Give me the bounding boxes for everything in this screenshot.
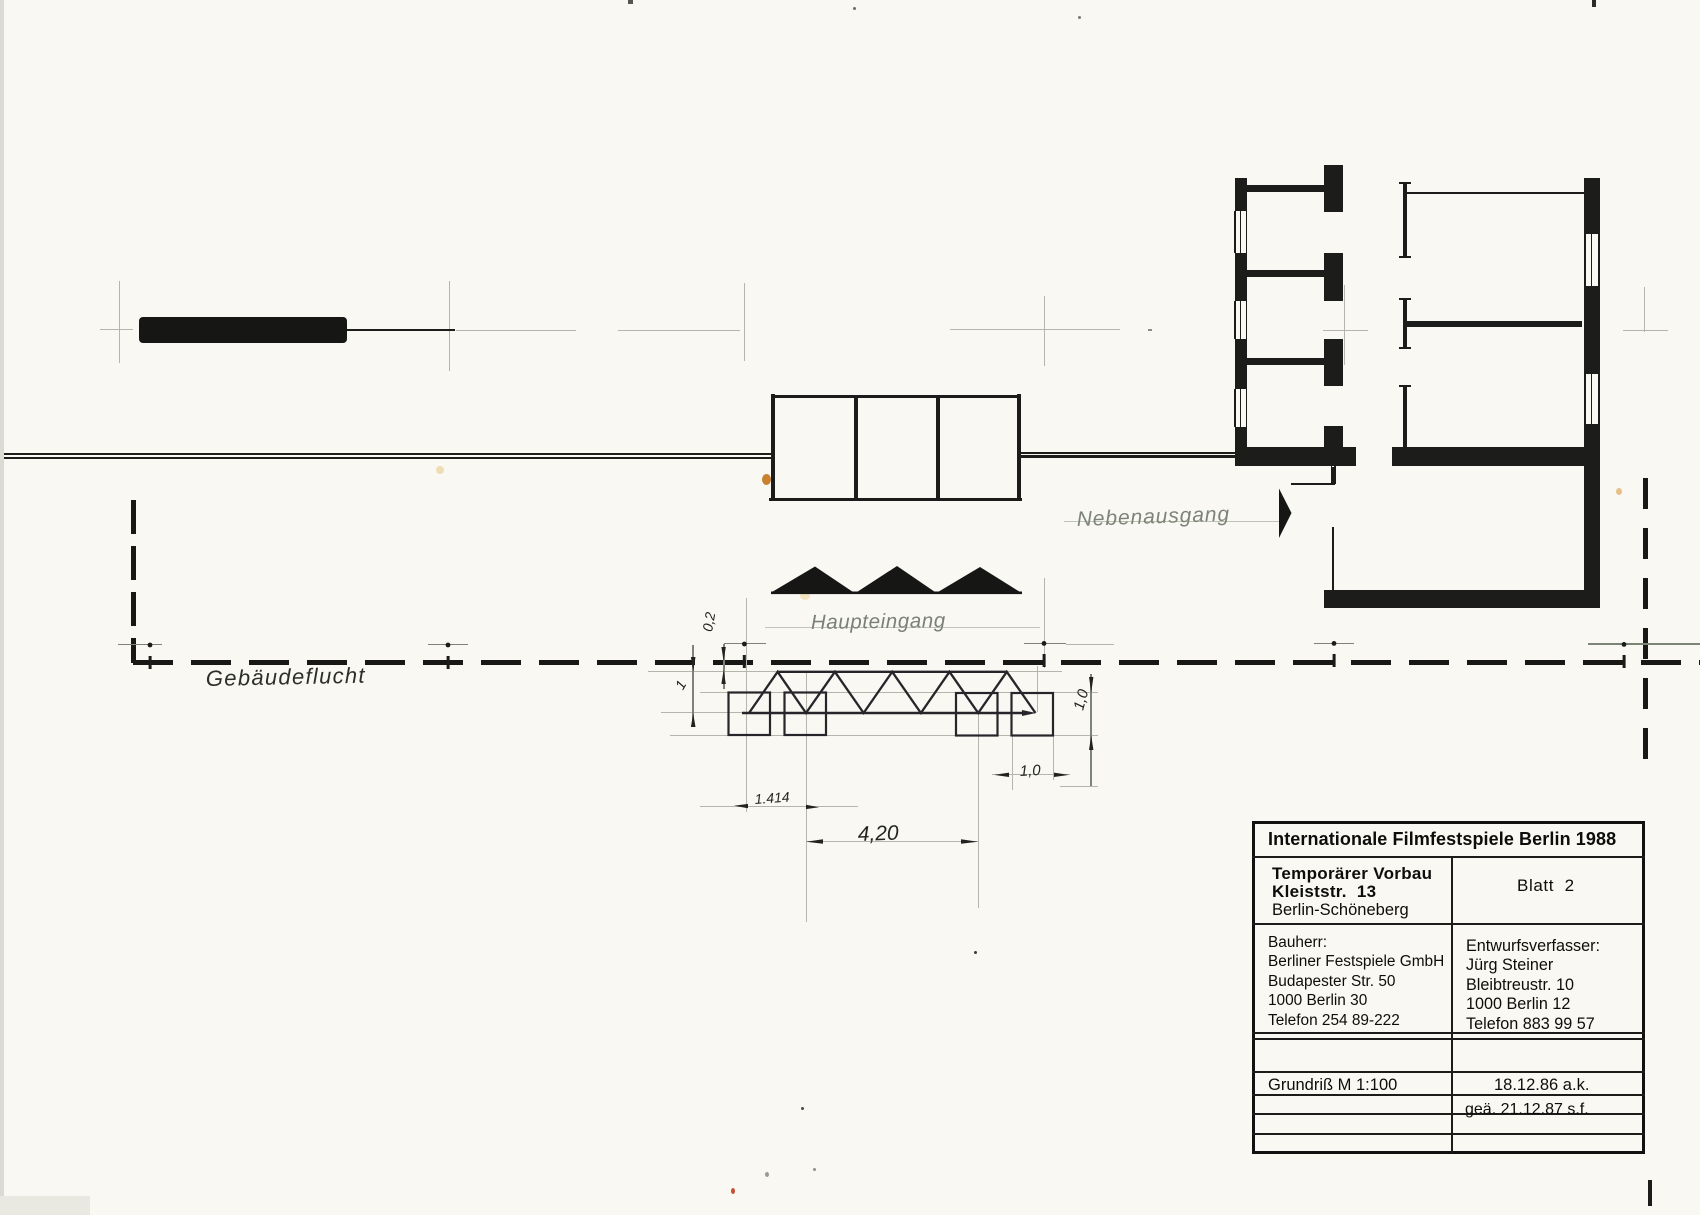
- svg-text:0,2: 0,2: [699, 611, 718, 633]
- svg-text:Haupteingang: Haupteingang: [811, 609, 946, 634]
- svg-text:Gebäudeflucht: Gebäudeflucht: [206, 663, 367, 691]
- svg-text:1: 1: [672, 677, 690, 692]
- svg-text:1.414: 1.414: [754, 789, 790, 807]
- svg-text:4,20: 4,20: [857, 822, 899, 846]
- svg-text:1,0: 1,0: [1070, 687, 1092, 712]
- svg-text:Nebenausgang: Nebenausgang: [1076, 503, 1230, 531]
- svg-text:1,0: 1,0: [1019, 762, 1041, 780]
